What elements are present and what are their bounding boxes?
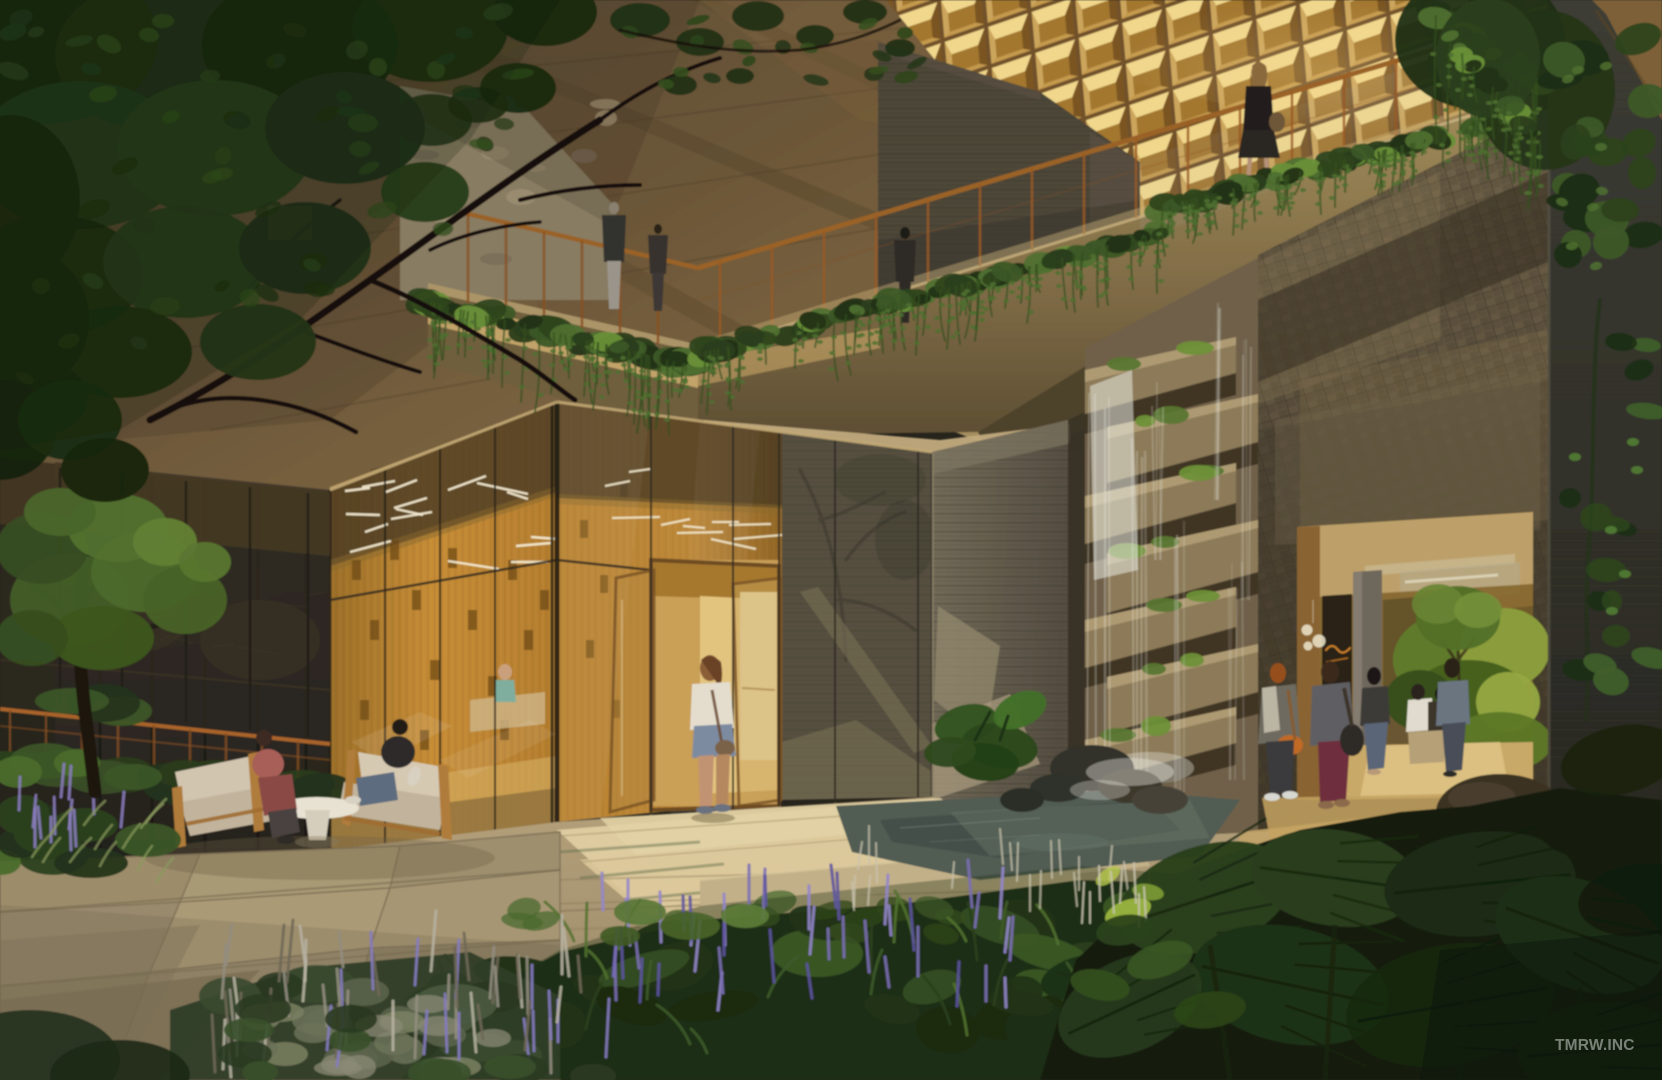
svg-text:TMRW.INC: TMRW.INC xyxy=(1555,1037,1635,1054)
